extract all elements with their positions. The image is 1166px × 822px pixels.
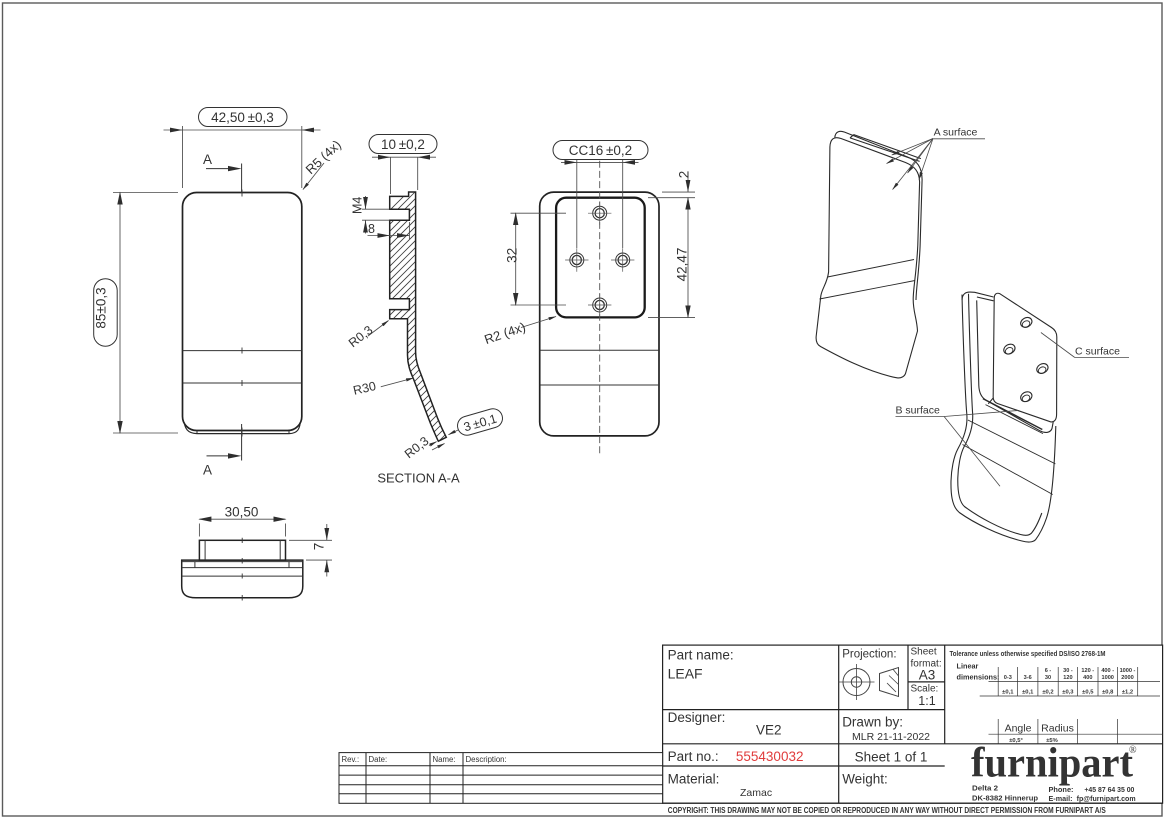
svg-text:Scale:: Scale:: [911, 684, 939, 695]
svg-text:120 -: 120 -: [1081, 668, 1094, 674]
svg-text:E-mail:: E-mail:: [1049, 794, 1073, 803]
svg-text:0-3: 0-3: [1004, 675, 1012, 681]
svg-text:CC16 ±0,2: CC16 ±0,2: [569, 143, 632, 158]
svg-text:±0,8: ±0,8: [1102, 690, 1114, 696]
svg-text:7: 7: [312, 543, 327, 551]
svg-text:Date:: Date:: [369, 755, 388, 764]
svg-text:Weight:: Weight:: [842, 772, 888, 787]
svg-text:Description:: Description:: [466, 755, 507, 764]
svg-text:A: A: [203, 463, 212, 478]
svg-text:400 -: 400 -: [1101, 668, 1114, 674]
svg-text:32: 32: [504, 248, 519, 263]
svg-text:Phone:: Phone:: [1049, 785, 1074, 794]
svg-text:VE2: VE2: [756, 723, 782, 738]
svg-text:Drawn by:: Drawn by:: [842, 715, 903, 730]
svg-text:10 ±0,2: 10 ±0,2: [381, 137, 425, 152]
svg-text:Name:: Name:: [433, 755, 456, 764]
svg-text:8: 8: [368, 222, 375, 236]
svg-text:400: 400: [1083, 675, 1092, 681]
svg-text:COPYRIGHT: THIS DRAWING MAY NO: COPYRIGHT: THIS DRAWING MAY NOT BE COPIE…: [668, 806, 1106, 815]
svg-text:±0,3: ±0,3: [1062, 690, 1074, 696]
svg-text:®: ®: [1129, 745, 1137, 756]
svg-text:120: 120: [1063, 675, 1072, 681]
svg-text:Linear: Linear: [957, 662, 979, 671]
svg-text:Sheet 1 of 1: Sheet 1 of 1: [855, 750, 928, 765]
svg-text:1000: 1000: [1101, 675, 1113, 681]
svg-text:±0,5: ±0,5: [1082, 690, 1094, 696]
svg-text:3-6: 3-6: [1024, 675, 1032, 681]
svg-text:A surface: A surface: [934, 127, 978, 139]
svg-text:Delta 2: Delta 2: [972, 784, 998, 793]
svg-text:A: A: [203, 152, 212, 167]
svg-text:Zamac: Zamac: [740, 787, 772, 799]
svg-text:C surface: C surface: [1075, 346, 1120, 358]
svg-text:30,50: 30,50: [225, 505, 259, 520]
svg-text:Part name:: Part name:: [668, 648, 734, 663]
svg-text:fp@furnipart.com: fp@furnipart.com: [1077, 794, 1136, 803]
svg-text:85±0,3: 85±0,3: [94, 287, 109, 328]
svg-text:Designer:: Designer:: [668, 710, 726, 725]
svg-text:Projection:: Projection:: [842, 649, 896, 661]
svg-text:42,47: 42,47: [675, 248, 690, 282]
svg-text:1:1: 1:1: [918, 694, 935, 708]
svg-text:2: 2: [677, 171, 692, 179]
svg-text:MLR 21-11-2022: MLR 21-11-2022: [852, 731, 930, 743]
svg-text:Angle: Angle: [1005, 723, 1032, 735]
svg-text:±1,2: ±1,2: [1122, 690, 1133, 696]
svg-text:±0,2: ±0,2: [1042, 690, 1053, 696]
svg-text:Part no.:: Part no.:: [668, 749, 719, 764]
svg-text:furnipart: furnipart: [971, 740, 1133, 787]
svg-text:DK-8382 Hinnerup: DK-8382 Hinnerup: [972, 794, 1038, 803]
svg-text:LEAF: LEAF: [668, 666, 703, 682]
svg-text:Radius: Radius: [1041, 723, 1074, 735]
svg-text:+45 87 64 35 00: +45 87 64 35 00: [1084, 785, 1134, 794]
svg-text:M4: M4: [351, 197, 365, 214]
svg-text:1000 -: 1000 -: [1120, 668, 1136, 674]
svg-text:±0,1: ±0,1: [1002, 690, 1014, 696]
svg-text:30: 30: [1045, 675, 1051, 681]
svg-text:Rev.:: Rev.:: [342, 755, 360, 764]
svg-text:30 -: 30 -: [1063, 668, 1073, 674]
svg-text:Sheet: Sheet: [911, 647, 937, 658]
svg-text:Material:: Material:: [668, 772, 720, 787]
svg-text:6 -: 6 -: [1045, 668, 1052, 674]
svg-text:B surface: B surface: [896, 405, 941, 417]
svg-text:2000: 2000: [1121, 675, 1133, 681]
svg-text:555430032: 555430032: [736, 749, 804, 764]
svg-text:SECTION A-A: SECTION A-A: [377, 471, 460, 486]
svg-text:±0,1: ±0,1: [1022, 690, 1034, 696]
svg-text:dimensions:: dimensions:: [957, 673, 1000, 682]
svg-text:A3: A3: [919, 668, 936, 683]
svg-text:42,50 ±0,3: 42,50 ±0,3: [211, 110, 274, 125]
svg-text:Tolerance unless otherwise spe: Tolerance unless otherwise specified DS/…: [950, 649, 1106, 658]
